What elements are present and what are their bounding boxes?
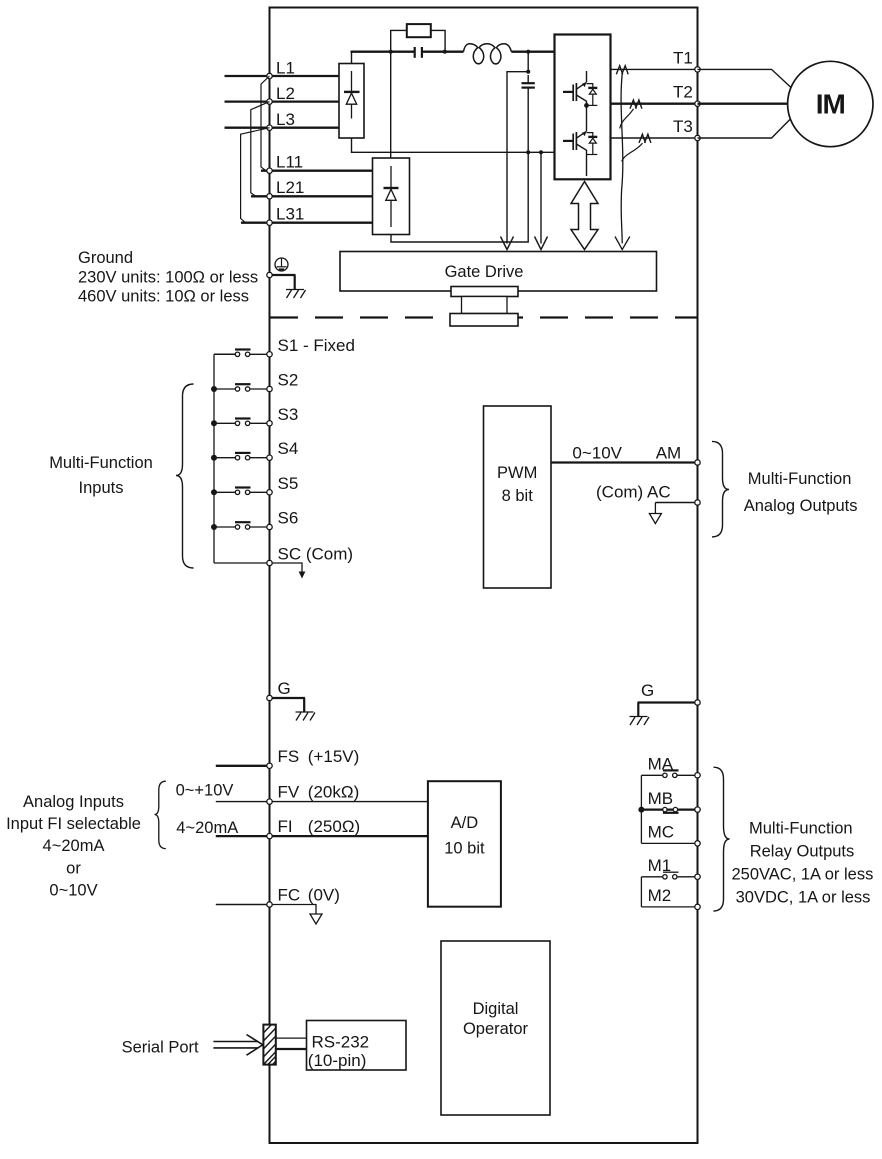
svg-text:L11: L11 — [276, 153, 303, 172]
svg-text:FC: FC — [278, 886, 301, 905]
svg-text:PWM: PWM — [497, 464, 537, 482]
svg-text:L2: L2 — [276, 84, 295, 103]
svg-text:IM: IM — [816, 89, 845, 120]
svg-text:250VAC, 1A or less: 250VAC, 1A or less — [731, 866, 873, 884]
svg-text:Ground: Ground — [78, 249, 133, 267]
svg-text:230V units: 100Ω or less: 230V units: 100Ω or less — [78, 269, 258, 287]
svg-text:M2: M2 — [648, 886, 672, 905]
svg-text:T2: T2 — [673, 83, 693, 102]
svg-text:Operator: Operator — [463, 1020, 529, 1038]
svg-text:Analog Inputs: Analog Inputs — [23, 793, 124, 811]
svg-text:G: G — [278, 679, 291, 698]
svg-text:Digital: Digital — [473, 1000, 519, 1018]
svg-text:(10-pin): (10-pin) — [308, 1051, 367, 1070]
svg-text:0~+10V: 0~+10V — [176, 782, 234, 800]
svg-text:AM: AM — [656, 444, 682, 463]
svg-text:(+15V): (+15V) — [308, 747, 360, 766]
svg-text:L31: L31 — [276, 205, 304, 224]
svg-text:L21: L21 — [276, 178, 304, 197]
svg-text:0~10V: 0~10V — [572, 444, 622, 463]
svg-text:or: or — [66, 860, 81, 878]
svg-text:Inputs: Inputs — [79, 479, 124, 497]
svg-text:T1: T1 — [673, 49, 693, 68]
svg-text:S6: S6 — [278, 509, 299, 528]
svg-text:S3: S3 — [278, 405, 299, 424]
svg-text:30VDC, 1A or less: 30VDC, 1A or less — [736, 888, 871, 906]
svg-text:S5: S5 — [278, 474, 299, 493]
svg-text:S1 - Fixed: S1 - Fixed — [278, 336, 355, 355]
svg-text:(0V): (0V) — [308, 886, 340, 905]
svg-text:FV: FV — [278, 783, 300, 802]
svg-text:8 bit: 8 bit — [502, 487, 534, 505]
svg-text:M1: M1 — [648, 856, 672, 875]
svg-text:L1: L1 — [276, 59, 295, 78]
svg-text:(250Ω): (250Ω) — [308, 817, 360, 836]
svg-text:4~20mA: 4~20mA — [176, 819, 238, 837]
svg-text:S4: S4 — [278, 439, 299, 458]
svg-text:Relay Outputs: Relay Outputs — [750, 843, 855, 861]
svg-text:G: G — [641, 681, 654, 700]
svg-text:RS-232: RS-232 — [312, 1033, 370, 1052]
svg-text:(20kΩ): (20kΩ) — [308, 783, 359, 802]
svg-text:Analog Outputs: Analog Outputs — [744, 497, 858, 515]
svg-text:(Com) AC: (Com) AC — [596, 483, 671, 502]
svg-text:L3: L3 — [276, 110, 295, 129]
svg-text:A/D: A/D — [451, 814, 479, 832]
svg-text:Gate Drive: Gate Drive — [445, 263, 524, 281]
svg-text:Serial Port: Serial Port — [122, 1039, 199, 1057]
svg-text:SC (Com): SC (Com) — [278, 545, 354, 564]
svg-text:MC: MC — [648, 823, 674, 842]
svg-text:0~10V: 0~10V — [49, 882, 97, 900]
svg-text:Multi-Function: Multi-Function — [49, 454, 153, 472]
svg-text:MA: MA — [648, 755, 674, 774]
svg-text:T3: T3 — [673, 117, 693, 136]
svg-text:10 bit: 10 bit — [444, 840, 485, 858]
svg-text:Multi-Function: Multi-Function — [749, 819, 853, 837]
svg-text:MB: MB — [648, 789, 674, 808]
svg-text:460V units: 10Ω or less: 460V units: 10Ω or less — [78, 288, 249, 306]
svg-text:Multi-Function: Multi-Function — [748, 470, 852, 488]
svg-text:Input FI selectable: Input FI selectable — [6, 815, 141, 833]
svg-text:4~20mA: 4~20mA — [43, 837, 105, 855]
svg-text:FI: FI — [278, 817, 293, 836]
svg-text:S2: S2 — [278, 371, 299, 390]
svg-text:FS: FS — [278, 747, 300, 766]
